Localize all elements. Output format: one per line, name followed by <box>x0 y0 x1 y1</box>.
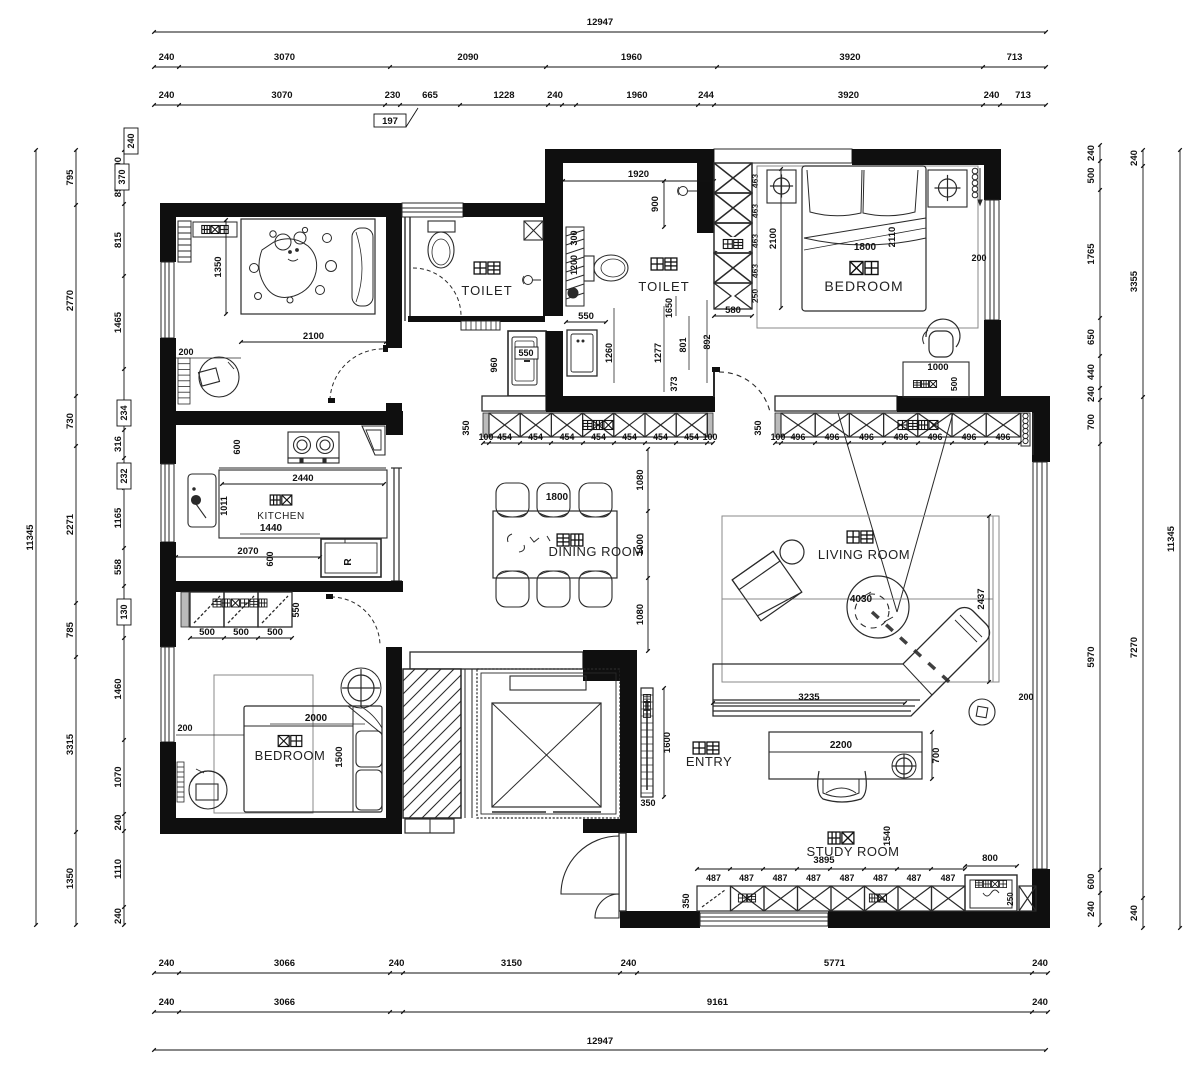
svg-text:487: 487 <box>941 873 956 883</box>
svg-text:240: 240 <box>389 958 405 969</box>
svg-text:487: 487 <box>907 873 922 883</box>
svg-text:230: 230 <box>385 90 401 101</box>
svg-text:500: 500 <box>1086 168 1097 184</box>
svg-text:463: 463 <box>750 264 760 278</box>
svg-text:250: 250 <box>1006 892 1015 906</box>
svg-text:240: 240 <box>113 815 124 831</box>
svg-text:1765: 1765 <box>1086 243 1097 265</box>
svg-text:558: 558 <box>113 559 124 575</box>
svg-text:12947: 12947 <box>587 1036 613 1047</box>
svg-text:BEDROOM: BEDROOM <box>824 278 903 294</box>
svg-text:2440: 2440 <box>292 473 313 484</box>
svg-text:454: 454 <box>622 432 637 442</box>
svg-text:2100: 2100 <box>768 228 779 249</box>
svg-text:1260: 1260 <box>604 343 614 363</box>
svg-text:1920: 1920 <box>628 169 649 180</box>
svg-text:12947: 12947 <box>587 17 613 28</box>
svg-text:240: 240 <box>984 90 1000 101</box>
svg-text:1960: 1960 <box>621 52 642 63</box>
svg-text:700: 700 <box>931 748 942 764</box>
svg-text:3235: 3235 <box>798 692 820 703</box>
svg-text:3920: 3920 <box>838 90 859 101</box>
svg-text:373: 373 <box>669 376 679 391</box>
svg-text:454: 454 <box>653 432 668 442</box>
svg-text:200: 200 <box>177 723 192 733</box>
svg-text:1500: 1500 <box>334 746 345 767</box>
svg-text:240: 240 <box>159 90 175 101</box>
svg-text:240: 240 <box>1086 901 1097 917</box>
svg-text:487: 487 <box>706 873 721 883</box>
svg-text:550: 550 <box>578 311 594 322</box>
svg-text:500: 500 <box>233 627 249 638</box>
svg-text:550: 550 <box>518 348 533 358</box>
svg-text:2437: 2437 <box>976 588 987 609</box>
svg-text:3066: 3066 <box>274 997 295 1008</box>
svg-text:454: 454 <box>560 432 575 442</box>
svg-text:240: 240 <box>159 997 175 1008</box>
svg-text:440: 440 <box>1086 364 1097 380</box>
svg-text:800: 800 <box>982 853 998 864</box>
svg-text:1228: 1228 <box>493 90 514 101</box>
svg-text:496: 496 <box>825 432 840 442</box>
svg-text:5771: 5771 <box>824 958 846 969</box>
svg-text:454: 454 <box>528 432 543 442</box>
svg-text:TOILET: TOILET <box>638 279 689 294</box>
svg-text:3070: 3070 <box>271 90 292 101</box>
svg-text:487: 487 <box>840 873 855 883</box>
svg-text:200: 200 <box>1018 692 1033 702</box>
svg-text:ENTRY: ENTRY <box>686 754 732 769</box>
svg-text:500: 500 <box>949 377 959 391</box>
svg-text:1000: 1000 <box>927 362 948 373</box>
svg-text:600: 600 <box>232 439 242 454</box>
svg-text:600: 600 <box>265 551 275 566</box>
svg-text:496: 496 <box>859 432 874 442</box>
svg-text:240: 240 <box>159 958 175 969</box>
svg-text:197: 197 <box>382 116 398 127</box>
svg-text:496: 496 <box>928 432 943 442</box>
svg-text:2200: 2200 <box>830 740 853 751</box>
svg-text:1080: 1080 <box>635 469 646 490</box>
svg-text:1277: 1277 <box>653 343 663 363</box>
svg-text:496: 496 <box>894 432 909 442</box>
svg-text:3895: 3895 <box>813 855 835 866</box>
svg-text:785: 785 <box>65 621 76 638</box>
svg-text:240: 240 <box>1086 145 1097 161</box>
svg-text:200: 200 <box>971 253 986 263</box>
svg-text:7270: 7270 <box>1129 637 1140 658</box>
svg-text:1800: 1800 <box>546 492 569 503</box>
svg-text:KITCHEN: KITCHEN <box>257 511 304 522</box>
svg-text:240: 240 <box>547 90 563 101</box>
svg-text:1350: 1350 <box>65 868 76 889</box>
svg-text:1165: 1165 <box>113 507 124 528</box>
svg-text:815: 815 <box>113 231 124 248</box>
svg-text:BEDROOM: BEDROOM <box>255 748 326 763</box>
svg-text:454: 454 <box>497 432 512 442</box>
svg-text:2000: 2000 <box>305 713 328 724</box>
svg-text:496: 496 <box>996 432 1011 442</box>
svg-text:240: 240 <box>1032 958 1048 969</box>
svg-text:713: 713 <box>1007 52 1023 63</box>
svg-text:3315: 3315 <box>65 733 76 755</box>
svg-text:1460: 1460 <box>113 678 124 699</box>
svg-text:700: 700 <box>1086 414 1097 430</box>
svg-text:500: 500 <box>199 627 215 638</box>
svg-text:3150: 3150 <box>501 958 522 969</box>
svg-text:2100: 2100 <box>303 331 324 342</box>
svg-text:2070: 2070 <box>237 546 258 557</box>
svg-text:300: 300 <box>569 230 579 245</box>
svg-text:244: 244 <box>698 90 715 101</box>
svg-text:463: 463 <box>750 174 760 188</box>
svg-text:454: 454 <box>591 432 606 442</box>
svg-text:1080: 1080 <box>635 604 646 625</box>
svg-text:R: R <box>343 558 354 566</box>
svg-text:11345: 11345 <box>1166 525 1177 552</box>
svg-text:100: 100 <box>479 432 494 442</box>
svg-text:350: 350 <box>640 798 655 808</box>
svg-text:550: 550 <box>291 602 301 617</box>
svg-text:496: 496 <box>962 432 977 442</box>
svg-text:496: 496 <box>791 432 806 442</box>
svg-text:5970: 5970 <box>1086 646 1097 667</box>
svg-text:3066: 3066 <box>274 958 295 969</box>
svg-text:1350: 1350 <box>213 256 224 277</box>
svg-text:350: 350 <box>461 420 471 435</box>
svg-text:3070: 3070 <box>274 52 295 63</box>
svg-text:200: 200 <box>178 347 193 357</box>
svg-text:1960: 1960 <box>626 90 647 101</box>
svg-text:240: 240 <box>1032 997 1048 1008</box>
svg-text:1070: 1070 <box>113 766 124 787</box>
svg-text:730: 730 <box>65 413 76 429</box>
svg-text:TOILET: TOILET <box>461 283 512 298</box>
svg-text:960: 960 <box>489 357 499 372</box>
svg-text:665: 665 <box>422 90 439 101</box>
svg-text:2110: 2110 <box>887 227 898 248</box>
svg-text:370: 370 <box>117 169 127 184</box>
svg-text:2090: 2090 <box>457 52 478 63</box>
svg-text:240: 240 <box>113 908 124 924</box>
svg-text:130: 130 <box>119 604 129 619</box>
svg-text:240: 240 <box>1129 905 1140 921</box>
svg-text:240: 240 <box>1129 150 1140 166</box>
svg-text:234: 234 <box>119 405 129 420</box>
svg-text:1650: 1650 <box>664 298 674 318</box>
svg-text:240: 240 <box>159 52 175 63</box>
svg-text:240: 240 <box>1086 386 1097 402</box>
svg-text:100: 100 <box>703 432 718 442</box>
svg-text:2271: 2271 <box>65 513 76 535</box>
svg-text:1000: 1000 <box>635 534 646 555</box>
svg-text:580: 580 <box>725 305 741 316</box>
svg-text:350: 350 <box>753 420 763 435</box>
svg-text:1540: 1540 <box>882 826 892 846</box>
svg-text:713: 713 <box>1015 90 1031 101</box>
svg-text:250: 250 <box>750 289 760 303</box>
svg-text:1600: 1600 <box>662 732 673 753</box>
svg-text:500: 500 <box>267 627 283 638</box>
svg-text:3355: 3355 <box>1129 270 1140 292</box>
svg-text:1011: 1011 <box>219 496 229 516</box>
svg-text:316: 316 <box>113 436 124 452</box>
svg-text:1440: 1440 <box>260 523 283 534</box>
svg-text:1200: 1200 <box>569 255 579 275</box>
svg-text:487: 487 <box>873 873 888 883</box>
svg-text:600: 600 <box>1086 874 1097 890</box>
svg-text:4030: 4030 <box>850 594 873 605</box>
svg-text:1465: 1465 <box>113 311 124 333</box>
svg-text:900: 900 <box>650 196 661 212</box>
svg-text:DINING ROOM: DINING ROOM <box>548 544 643 559</box>
svg-text:463: 463 <box>750 234 760 248</box>
svg-text:801: 801 <box>678 337 688 352</box>
svg-text:1110: 1110 <box>113 859 124 879</box>
svg-text:9161: 9161 <box>707 997 729 1008</box>
svg-text:100: 100 <box>771 432 786 442</box>
svg-text:454: 454 <box>684 432 699 442</box>
svg-text:2770: 2770 <box>65 290 76 311</box>
svg-text:232: 232 <box>119 468 129 483</box>
svg-text:795: 795 <box>65 169 76 186</box>
svg-text:1800: 1800 <box>854 242 877 253</box>
svg-text:350: 350 <box>681 893 691 908</box>
svg-text:3920: 3920 <box>839 52 860 63</box>
svg-text:240: 240 <box>621 958 637 969</box>
svg-text:LIVING ROOM: LIVING ROOM <box>818 547 910 562</box>
svg-text:11345: 11345 <box>25 524 36 551</box>
svg-text:487: 487 <box>739 873 754 883</box>
svg-text:240: 240 <box>126 133 136 148</box>
svg-text:487: 487 <box>806 873 821 883</box>
svg-text:650: 650 <box>1086 329 1097 345</box>
svg-text:487: 487 <box>773 873 788 883</box>
svg-text:463: 463 <box>750 204 760 218</box>
